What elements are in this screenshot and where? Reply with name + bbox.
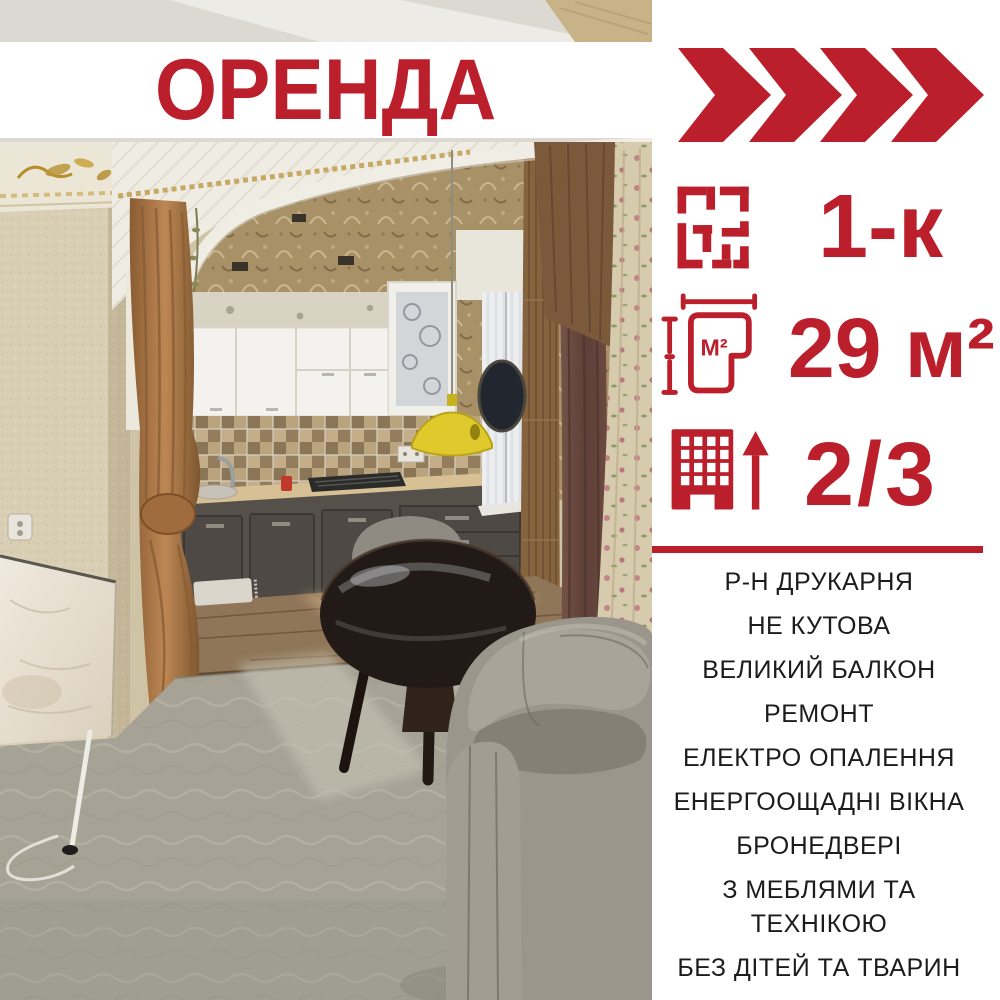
floor-value: 2/3 <box>804 424 938 527</box>
area-measure-icon: М² <box>660 292 772 404</box>
feature-item: ЕНЕРГООЩАДНІ ВІКНА <box>652 780 986 824</box>
rooms-value: 1-к <box>818 176 943 279</box>
upper-cabinets <box>176 328 388 422</box>
up-arrow-icon <box>743 431 769 509</box>
features-list: Р-Н ДРУКАРНЯ НЕ КУТОВА ВЕЛИКИЙ БАЛКОН РЕ… <box>652 560 986 990</box>
floor-plan-icon <box>666 177 766 277</box>
building-floor-icon <box>666 423 778 527</box>
feature-item: З МЕБЛЯМИ ТА ТЕХНІКОЮ <box>652 868 986 946</box>
feature-item: ВЕЛИКИЙ БАЛКОН <box>652 648 986 692</box>
area-value: 29 м² <box>788 300 995 397</box>
divider-line <box>652 546 983 553</box>
stat-floor: 2/3 <box>666 414 938 536</box>
fast-forward-chevrons-icon <box>678 48 984 142</box>
page-title: ОРЕНДА <box>155 41 496 140</box>
area-icon-label: М² <box>701 335 728 361</box>
feature-item: БЕЗ ДІТЕЙ ТА ТВАРИН <box>652 946 986 990</box>
feature-item: НЕ КУТОВА <box>652 604 986 648</box>
rental-ad: ОРЕНДА <box>0 0 1000 1000</box>
floor-mat <box>189 578 257 607</box>
feature-item: Р-Н ДРУКАРНЯ <box>652 560 986 604</box>
feature-item: РЕМОНТ <box>652 692 986 736</box>
info-panel: 1-к М² 29 м² <box>652 0 1000 1000</box>
feature-item: БРОНЕДВЕРІ <box>652 824 986 868</box>
round-mirror <box>479 361 525 431</box>
stat-area: М² 29 м² <box>660 286 995 410</box>
red-kettle <box>281 476 292 491</box>
glass-cabinet <box>388 282 456 416</box>
title-band: ОРЕНДА <box>0 42 652 138</box>
stat-rooms: 1-к <box>666 168 943 286</box>
feature-item: ЕЛЕКТРО ОПАЛЕННЯ <box>652 736 986 780</box>
apartment-photo <box>0 0 652 1000</box>
